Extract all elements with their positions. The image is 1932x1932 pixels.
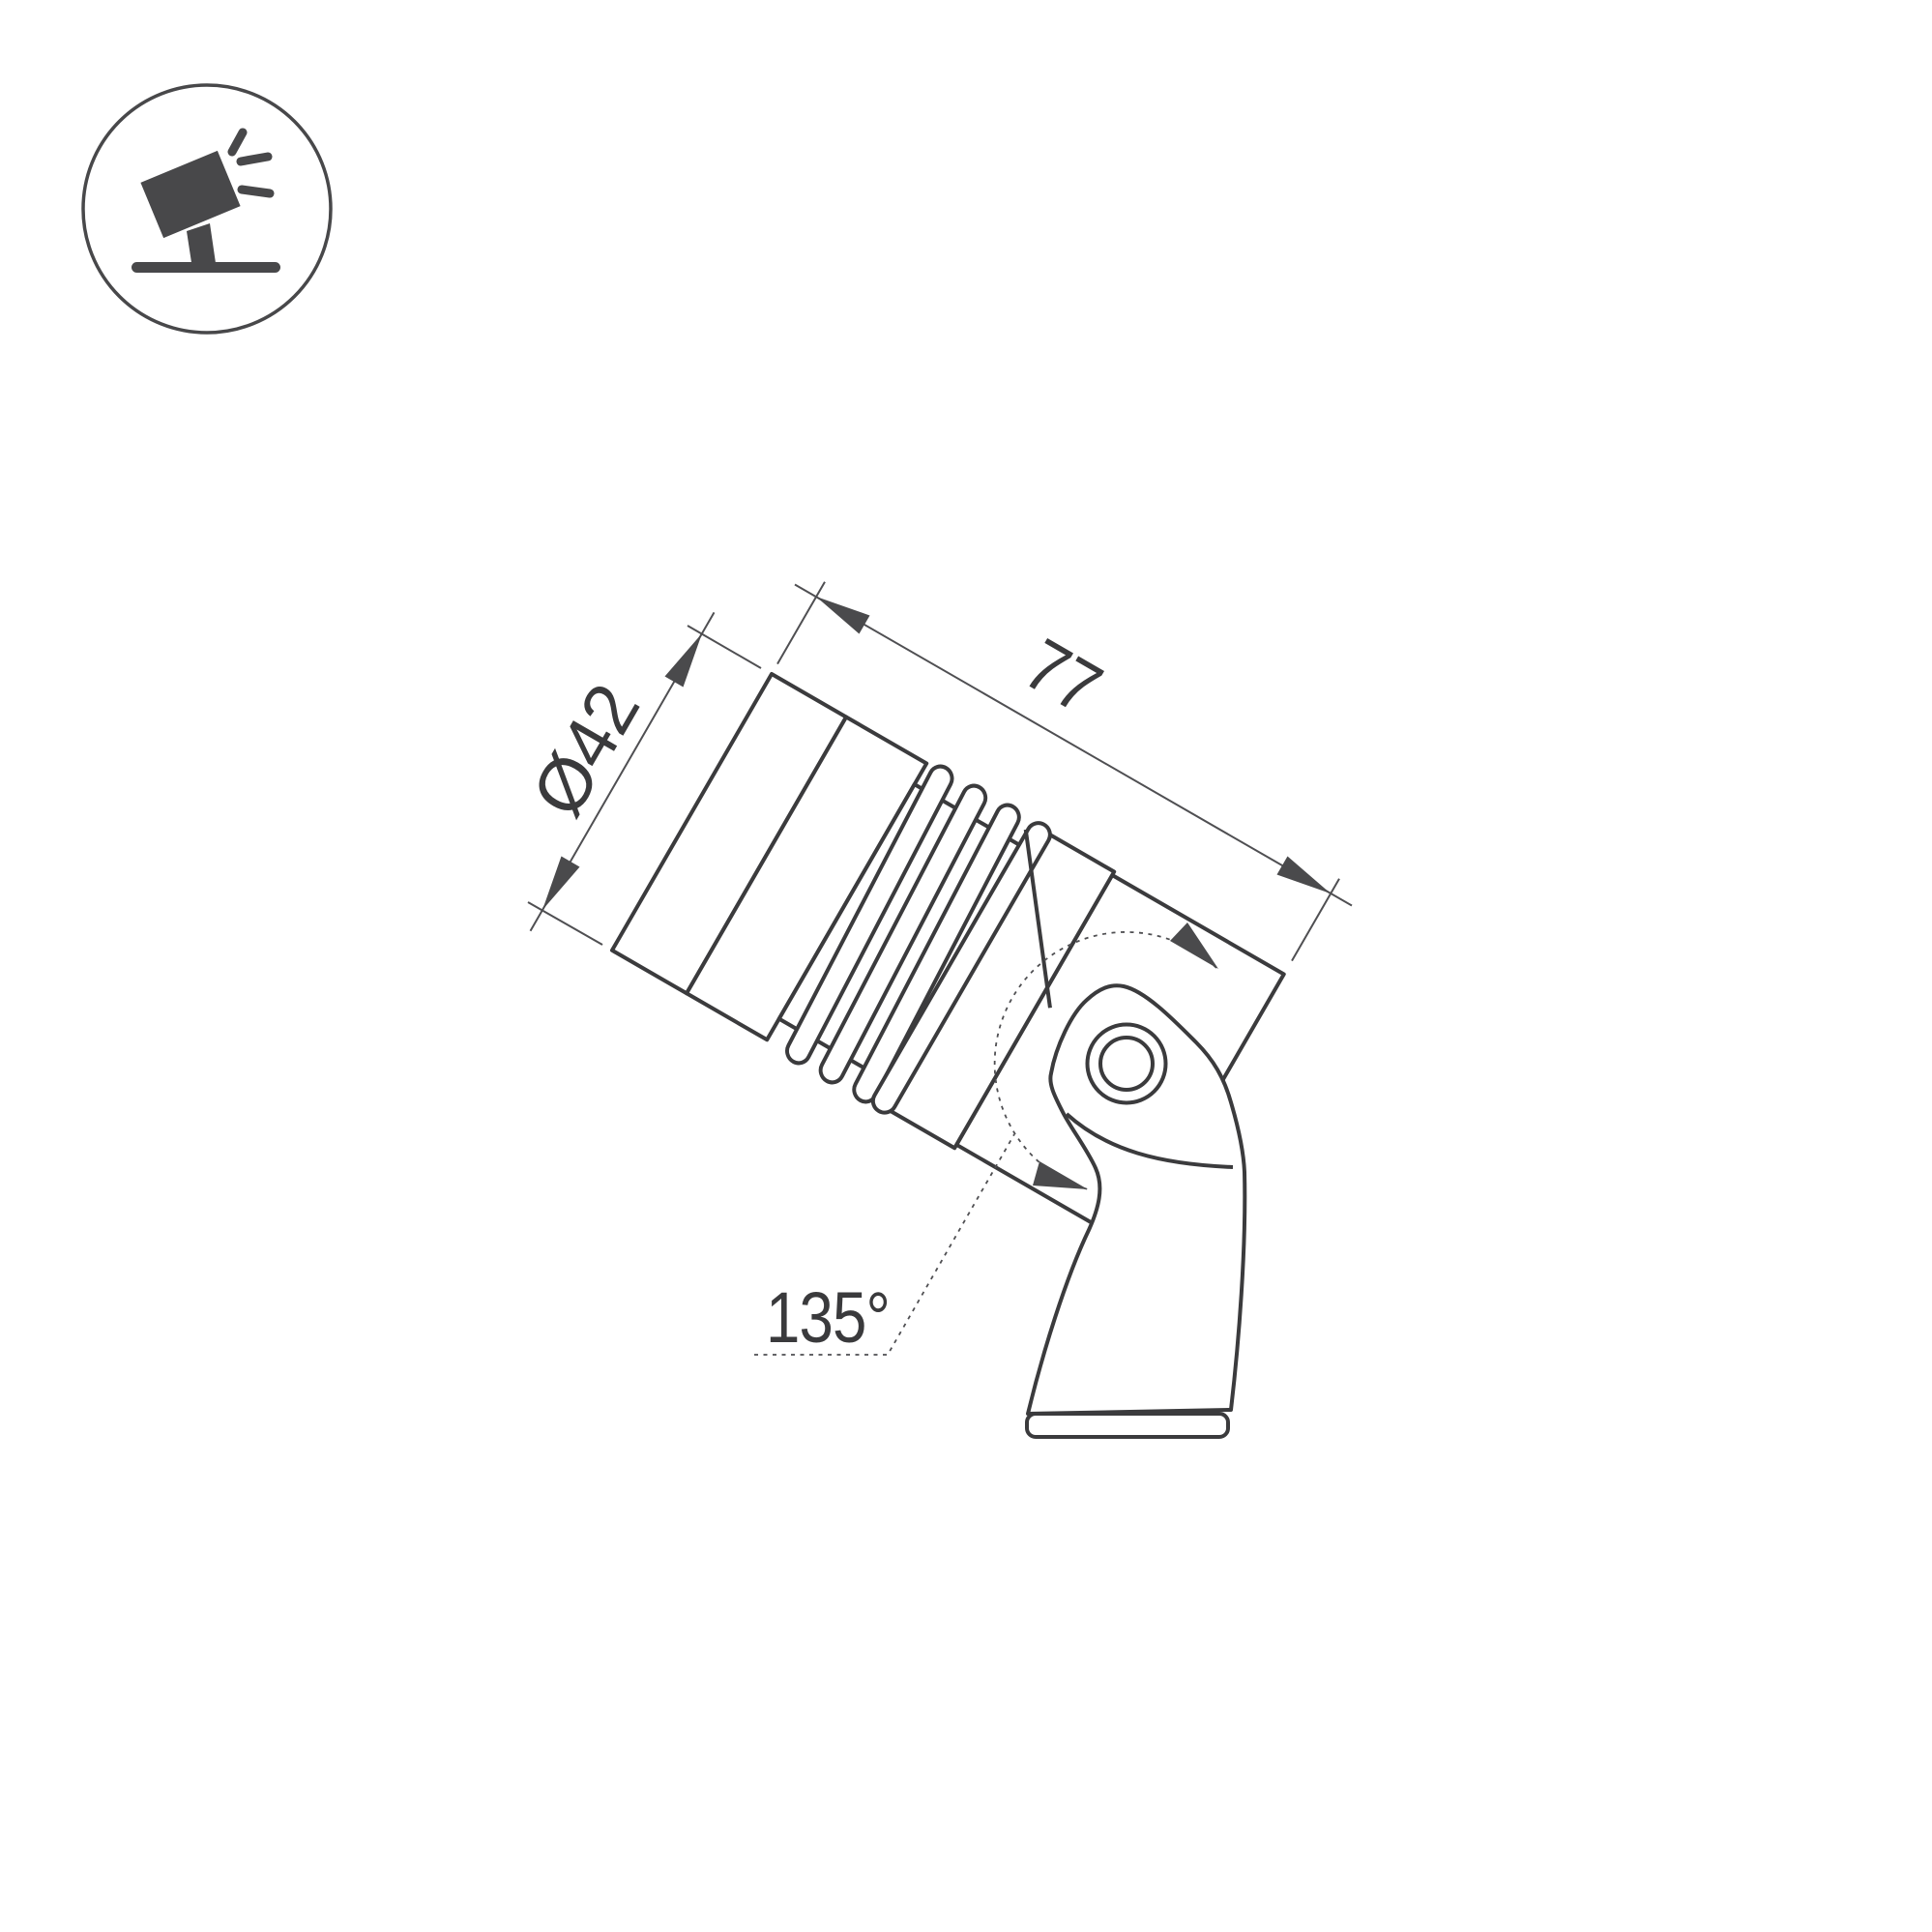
- extension-line: [528, 902, 602, 945]
- extension-line: [1292, 879, 1339, 961]
- extension-line: [777, 582, 825, 664]
- dimension-arrowhead: [665, 633, 703, 688]
- dimension-arrowhead: [542, 857, 580, 911]
- extension-line: [688, 626, 761, 668]
- dimension-arrowhead: [1277, 857, 1332, 894]
- tilted-spotlight-icon: [83, 85, 331, 333]
- dimension-arrowhead: [816, 597, 870, 634]
- length-label: 77: [1010, 624, 1114, 731]
- light-rays-icon: [232, 132, 270, 193]
- angle-label: 135°: [766, 1277, 890, 1358]
- pivot-screw: [1100, 1038, 1153, 1090]
- bracket-base-plate: [1027, 1414, 1228, 1437]
- spotlight-stem-glyph: [187, 223, 216, 269]
- spotlight-base-glyph: [132, 262, 280, 273]
- spotlight-head-glyph: [140, 151, 240, 238]
- technical-drawing: Ø42 77 135°: [0, 0, 1932, 1932]
- drawing-page: Ø42 77 135°: [0, 0, 1932, 1932]
